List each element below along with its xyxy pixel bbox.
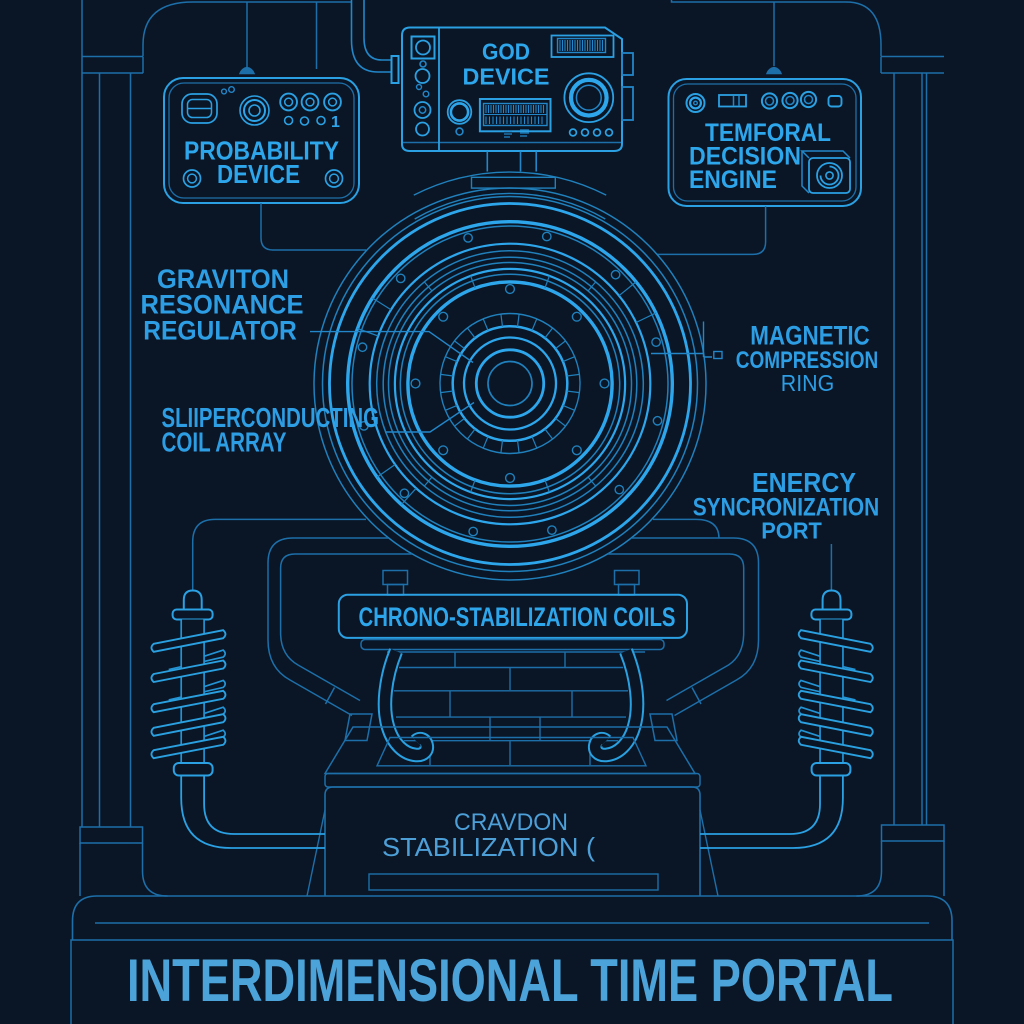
svg-text:DEVICE: DEVICE bbox=[463, 64, 550, 90]
svg-text:CHRONO-STABILIZATION COILS: CHRONO-STABILIZATION COILS bbox=[359, 602, 676, 632]
svg-text:MAGNETIC: MAGNETIC bbox=[750, 321, 870, 351]
svg-text:DEVICE: DEVICE bbox=[217, 159, 300, 189]
svg-text:STABILIZATION (: STABILIZATION ( bbox=[382, 832, 595, 862]
svg-text:INTERDIMENSIONAL TIME PORTAL: INTERDIMENSIONAL TIME PORTAL bbox=[127, 947, 893, 1014]
svg-text:RING: RING bbox=[781, 370, 835, 396]
svg-text:GOD: GOD bbox=[482, 39, 530, 65]
svg-text:PORT: PORT bbox=[761, 518, 822, 544]
svg-text:ENGINE: ENGINE bbox=[689, 166, 777, 194]
svg-text:1: 1 bbox=[331, 114, 340, 131]
svg-text:REGULATOR: REGULATOR bbox=[143, 316, 297, 346]
svg-text:COIL ARRAY: COIL ARRAY bbox=[162, 427, 287, 458]
